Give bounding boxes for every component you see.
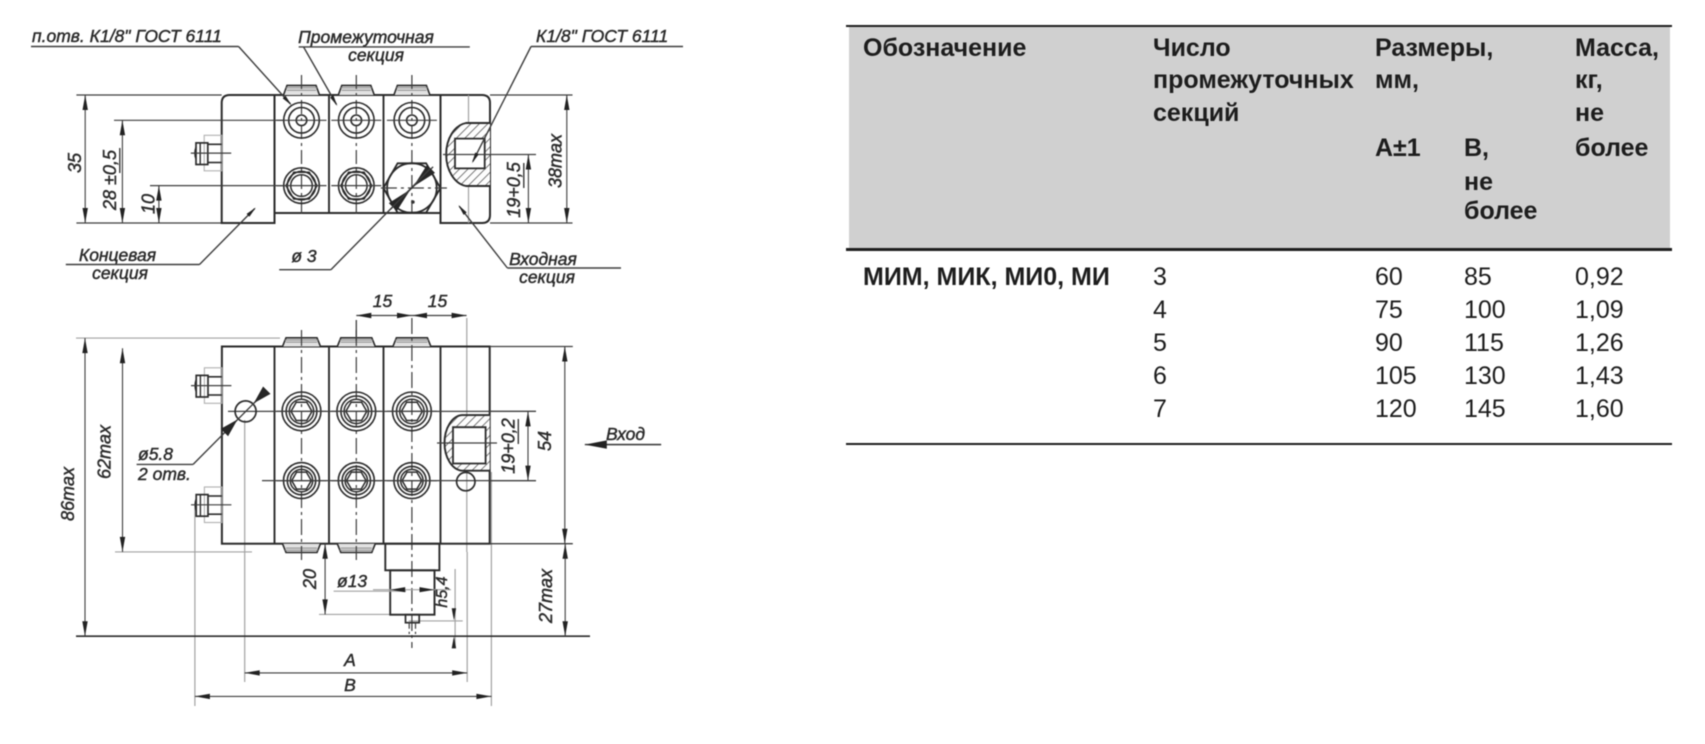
svg-text:15: 15 — [428, 291, 448, 311]
svg-text:Концевая: Концевая — [79, 245, 156, 265]
svg-text:A: A — [343, 650, 356, 670]
svg-text:секция: секция — [92, 263, 148, 283]
svg-text:ø13: ø13 — [337, 571, 367, 591]
svg-text:ø5.8: ø5.8 — [138, 444, 173, 464]
svg-text:15: 15 — [373, 291, 393, 311]
svg-text:10: 10 — [138, 194, 158, 214]
svg-text:Входная: Входная — [509, 249, 577, 269]
svg-text:секция: секция — [519, 267, 575, 287]
svg-text:86max: 86max — [58, 466, 78, 521]
svg-text:К1/8" ГОСТ 6111: К1/8" ГОСТ 6111 — [536, 26, 668, 46]
svg-text:ø 3: ø 3 — [291, 246, 317, 266]
svg-text:19+0,5: 19+0,5 — [504, 161, 524, 218]
svg-text:38max: 38max — [546, 133, 566, 188]
svg-text:секция: секция — [348, 45, 404, 65]
svg-text:28 ±0,5: 28 ±0,5 — [100, 149, 120, 211]
svg-text:19+0,2: 19+0,2 — [499, 418, 519, 474]
svg-text:62max: 62max — [95, 424, 115, 479]
svg-text:2 отв.: 2 отв. — [137, 464, 191, 484]
svg-text:B: B — [344, 675, 356, 695]
svg-text:27max: 27max — [536, 568, 556, 624]
svg-text:Промежуточная: Промежуточная — [298, 27, 434, 47]
svg-text:п.отв. К1/8" ГОСТ 6111: п.отв. К1/8" ГОСТ 6111 — [32, 26, 222, 46]
svg-text:20: 20 — [300, 569, 320, 590]
svg-text:Вход: Вход — [606, 424, 645, 444]
svg-text:h5,4: h5,4 — [434, 576, 451, 607]
svg-text:54: 54 — [535, 431, 555, 451]
svg-text:35: 35 — [65, 152, 85, 173]
